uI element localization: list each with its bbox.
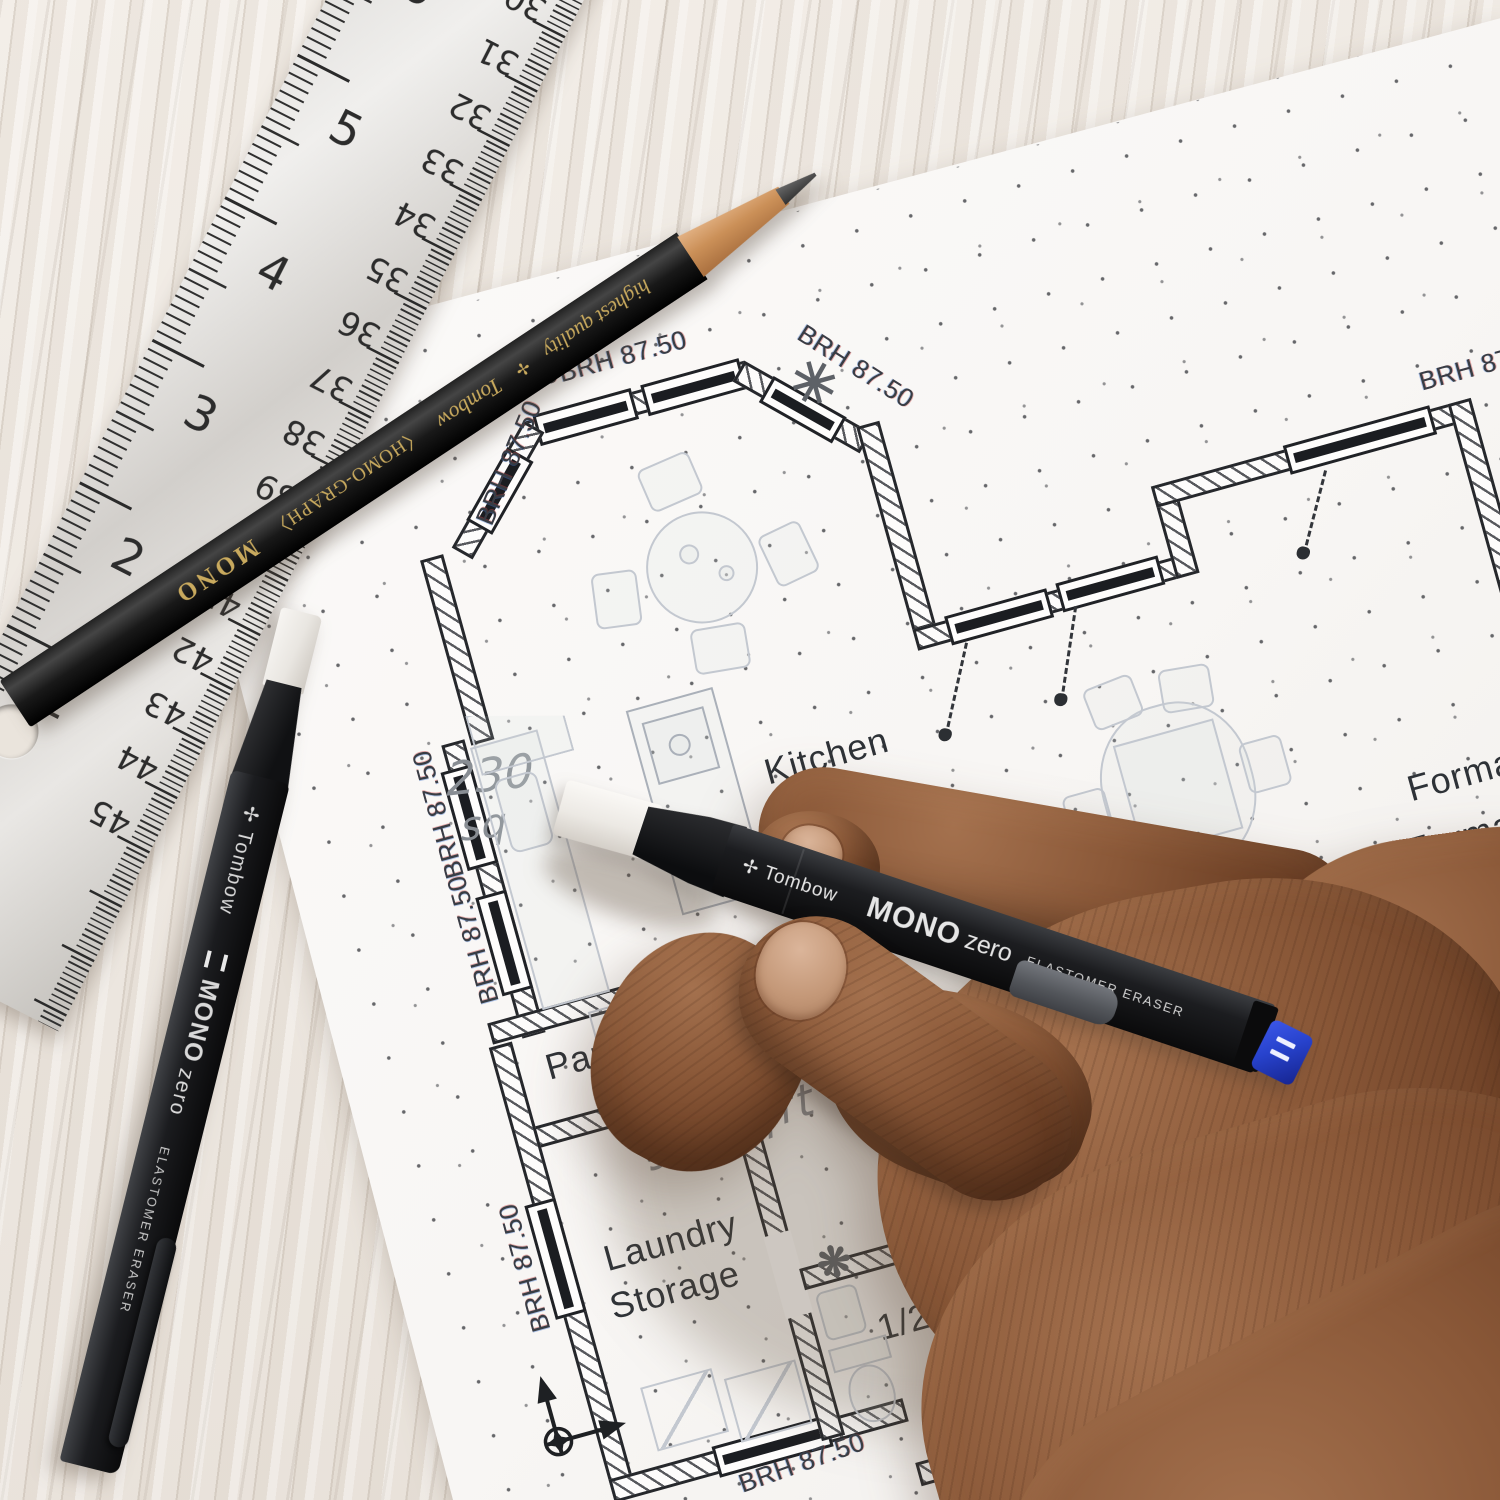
- pen-brand: ✢ Tombow: [739, 854, 841, 907]
- room-label-formal-living: Formal Liv: [1403, 722, 1500, 810]
- window: [944, 588, 1054, 645]
- window-head-height-label: BRH 87.50: [1416, 332, 1500, 397]
- window-treatment-squiggle: [1303, 470, 1327, 554]
- washer: [640, 1368, 729, 1451]
- nook-chair: [635, 450, 705, 515]
- window-treatment-squiggle: [945, 642, 968, 735]
- window: [640, 358, 747, 416]
- window-treatment-squiggle: [1060, 606, 1077, 700]
- photo-canvas: Kitchen Pantry Laundry Storage 1/2 Bath …: [0, 0, 1500, 1500]
- nook-chair: [590, 569, 643, 631]
- window: [1283, 405, 1437, 475]
- nook-chair: [756, 519, 822, 589]
- wall-right: [1448, 398, 1500, 703]
- pen-variant: zero: [961, 926, 1016, 969]
- nook-chair: [689, 621, 752, 676]
- window: [532, 388, 639, 446]
- window: [1055, 555, 1165, 612]
- mono-bars-icon: [849, 891, 856, 911]
- ruler-inch-number: 6: [393, 0, 445, 19]
- mono-bars-icon: [204, 950, 228, 972]
- dining-chair: [1157, 663, 1216, 715]
- dragonfly-logo-icon: ✢: [511, 356, 534, 381]
- wall-nook-right: [856, 421, 936, 632]
- nook-table: [633, 499, 771, 637]
